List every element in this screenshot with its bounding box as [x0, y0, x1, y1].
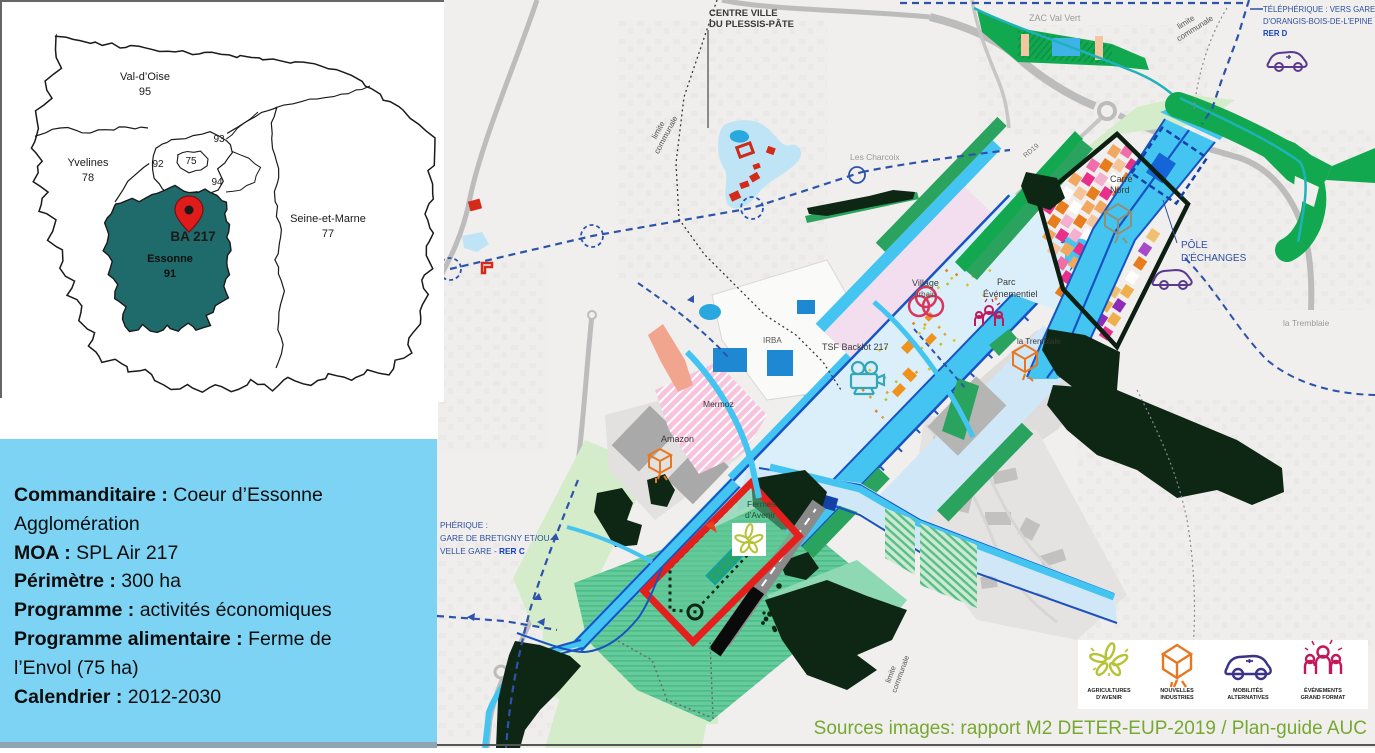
- svg-text:Village: Village: [912, 278, 939, 288]
- svg-text:ÉVÉNEMENTS: ÉVÉNEMENTS: [1304, 686, 1342, 694]
- svg-text:Mermoz: Mermoz: [703, 399, 734, 409]
- svg-text:GRAND FORMAT: GRAND FORMAT: [1301, 695, 1346, 701]
- svg-text:la Tremblaie: la Tremblaie: [1283, 318, 1330, 328]
- svg-text:Carré: Carré: [1110, 174, 1133, 184]
- svg-text:75: 75: [185, 156, 197, 167]
- svg-text:Val-d’Oise: Val-d’Oise: [120, 71, 170, 83]
- svg-text:Yvelines: Yvelines: [68, 157, 109, 169]
- svg-text:d'Avenir: d'Avenir: [745, 510, 775, 520]
- svg-text:78: 78: [82, 172, 94, 184]
- svg-text:D'AVENIR: D'AVENIR: [1096, 695, 1122, 701]
- svg-text:95: 95: [139, 86, 151, 98]
- svg-text:la Tremblaie: la Tremblaie: [1017, 337, 1061, 346]
- svg-text:IRBA: IRBA: [763, 336, 782, 345]
- svg-text:D'ÉCHANGES: D'ÉCHANGES: [1181, 251, 1247, 264]
- svg-text:TSF Backlot 217: TSF Backlot 217: [822, 342, 889, 352]
- svg-text:AGRICULTURES: AGRICULTURES: [1087, 688, 1131, 694]
- svg-text:INDUSTRIES: INDUSTRIES: [1160, 695, 1194, 701]
- svg-text:PHÉRIQUE :: PHÉRIQUE :: [440, 520, 488, 530]
- svg-text:VELLE GARE - RER C: VELLE GARE - RER C: [440, 546, 525, 556]
- svg-text:MOBILITÉS: MOBILITÉS: [1233, 686, 1263, 694]
- svg-text:BA 217: BA 217: [170, 229, 215, 244]
- svg-text:urbain: urbain: [914, 290, 936, 299]
- svg-text:NOUVELLES: NOUVELLES: [1160, 688, 1194, 694]
- svg-text:GARE DE BRETIGNY ET/OU: GARE DE BRETIGNY ET/OU: [440, 533, 550, 543]
- svg-text:94: 94: [211, 177, 223, 188]
- svg-text:Nord: Nord: [1110, 185, 1130, 195]
- svg-text:Seine-et-Marne: Seine-et-Marne: [290, 213, 366, 225]
- svg-text:Amazon: Amazon: [661, 434, 694, 444]
- svg-text:Événementiel: Événementiel: [983, 289, 1038, 299]
- svg-text:91: 91: [164, 268, 176, 280]
- svg-text:TÉLÉPHÉRIQUE : VERS GARE: TÉLÉPHÉRIQUE : VERS GARE: [1263, 5, 1375, 14]
- svg-text:Sources images: rapport M2 DET: Sources images: rapport M2 DETER-EUP-201…: [814, 718, 1367, 739]
- svg-text:DU PLESSIS-PÂTE: DU PLESSIS-PÂTE: [709, 18, 794, 30]
- svg-text:Parc: Parc: [997, 277, 1016, 287]
- svg-text:Fermes: Fermes: [747, 499, 776, 509]
- svg-text:Les Charcoix: Les Charcoix: [850, 152, 900, 162]
- svg-text:ZAC Val Vert: ZAC Val Vert: [1029, 13, 1081, 23]
- svg-text:93: 93: [213, 134, 225, 145]
- svg-text:92: 92: [152, 159, 164, 170]
- svg-text:CENTRE VILLE: CENTRE VILLE: [709, 8, 778, 19]
- svg-text:PÔLE: PÔLE: [1181, 238, 1208, 251]
- svg-text:ALTERNATIVES: ALTERNATIVES: [1227, 695, 1269, 701]
- svg-text:D'ORANGIS-BOIS-DE-L'EPINE: D'ORANGIS-BOIS-DE-L'EPINE: [1263, 17, 1373, 26]
- svg-text:Essonne: Essonne: [147, 253, 193, 265]
- svg-text:RER D: RER D: [1263, 29, 1288, 38]
- svg-text:77: 77: [322, 228, 334, 240]
